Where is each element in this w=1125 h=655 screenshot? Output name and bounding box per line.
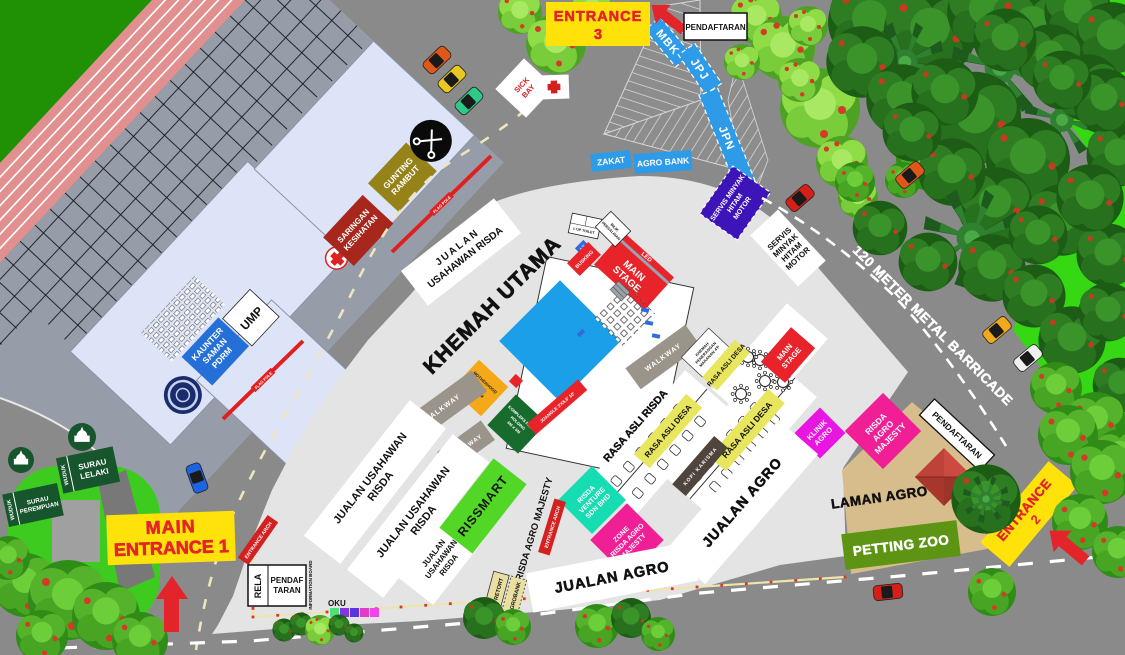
svg-text:TARAN: TARAN: [273, 586, 301, 595]
svg-text:ENTRANCE: ENTRANCE: [554, 9, 643, 25]
svg-text:PENDAFTARAN: PENDAFTARAN: [685, 23, 746, 32]
svg-text:OKU: OKU: [328, 599, 346, 608]
svg-text:MAIN: MAIN: [145, 516, 196, 538]
svg-text:ENTRANCE 1: ENTRANCE 1: [114, 536, 230, 560]
svg-text:3: 3: [594, 27, 602, 43]
svg-text:RELA: RELA: [253, 573, 263, 598]
svg-text:PENDAF: PENDAF: [271, 576, 304, 585]
svg-text:INFORMATION BOARD: INFORMATION BOARD: [308, 560, 313, 610]
